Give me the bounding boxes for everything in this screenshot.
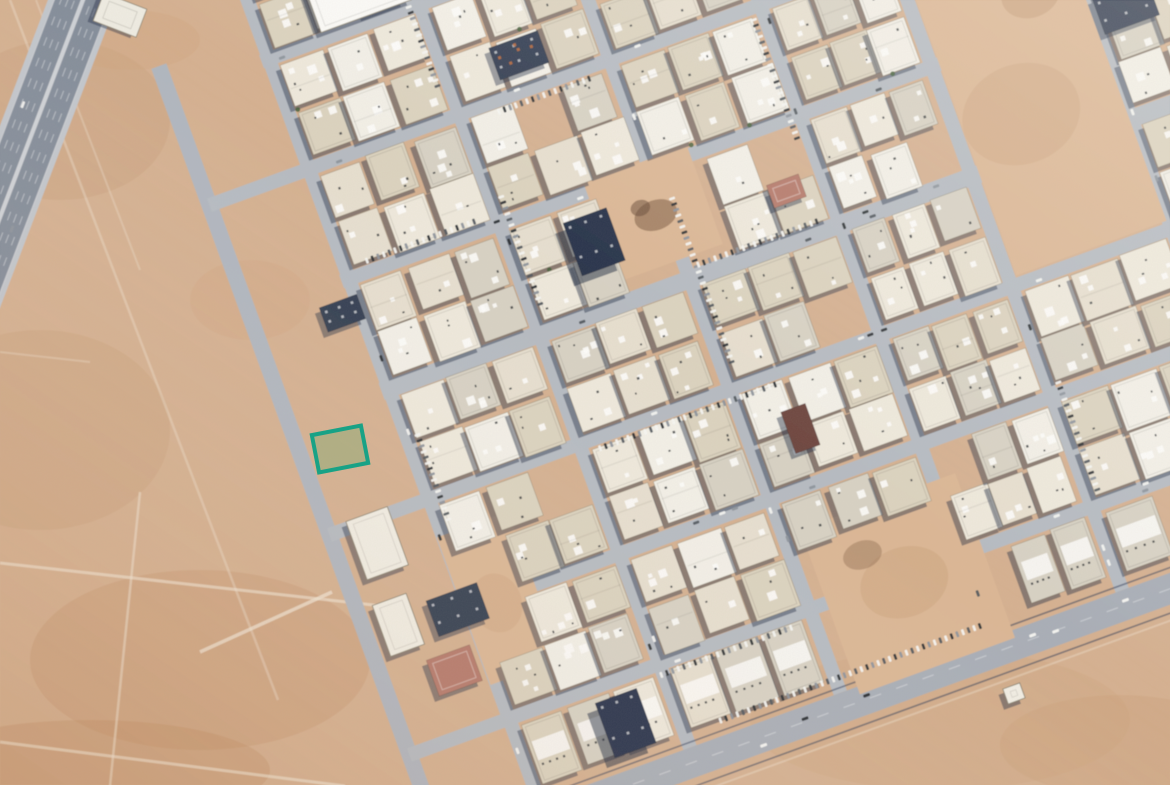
satellite-imagery (0, 0, 1170, 785)
grain-overlay (0, 0, 1170, 785)
satellite-map-view (0, 0, 1170, 785)
